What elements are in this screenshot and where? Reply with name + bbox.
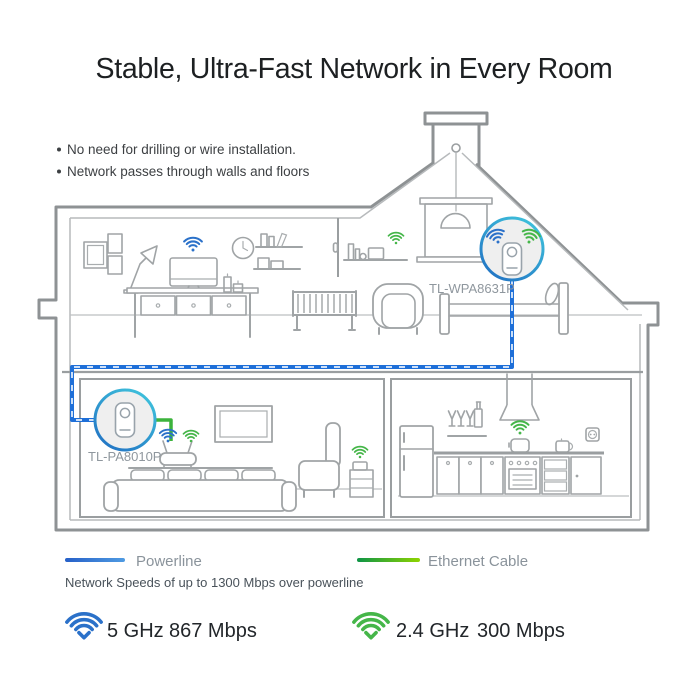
armchair-upstairs (373, 284, 423, 334)
range-hood (500, 374, 539, 420)
wifi-icon-green-kitchen-device (511, 421, 528, 434)
adapter-label-upstairs: TL-WPA8631P (429, 281, 515, 296)
wifi-icon-green-cabinet-device (352, 447, 367, 459)
roof-peak-hook (452, 144, 460, 152)
floating-shelf (344, 244, 407, 260)
powerline-adapter-device (116, 403, 135, 437)
radiator (293, 291, 356, 330)
powerline-infographic: Stable, Ultra-Fast Network in Every Room… (0, 0, 700, 700)
power-outlet (586, 428, 599, 441)
side-cabinet (350, 462, 373, 497)
ethernet-legend-label: Ethernet Cable (428, 553, 528, 570)
bottle (475, 409, 483, 427)
wifi-icon-green-shelf-device (388, 233, 403, 245)
wifi-speed-24ghz: 2.4 GHz 300 Mbps (354, 614, 565, 642)
band-24ghz: 2.4 GHz (396, 620, 469, 642)
smart-device (353, 462, 367, 470)
desk-lamp (124, 246, 157, 293)
bullet-point-1: No need for drilling or wire installatio… (67, 142, 296, 157)
powerline-adapter-device (503, 243, 522, 275)
sofa (104, 468, 296, 511)
armchair-downstairs (299, 423, 340, 497)
wifi-router (160, 441, 196, 468)
rate-5ghz: 867 Mbps (169, 620, 257, 642)
wifi-arrow-icon-blue (67, 614, 101, 638)
picture-frames (84, 234, 122, 274)
adapter-label-downstairs: TL-PA8010P (88, 449, 161, 464)
bullet-dot (57, 148, 61, 152)
bullet-dot (57, 170, 61, 174)
wifi-icon-green-router (183, 431, 198, 443)
legend: Powerline Network Speeds of up to 1300 M… (65, 553, 528, 590)
fridge (400, 426, 433, 497)
oven (505, 457, 540, 494)
kitchen-counter (434, 453, 604, 494)
toaster (511, 439, 529, 452)
adapter-downstairs: TL-PA8010P (88, 390, 161, 464)
bullet-point-2: Network passes through walls and floors (67, 164, 310, 179)
rate-24ghz: 300 Mbps (477, 620, 565, 642)
wine-shelf (448, 402, 486, 436)
powerline-speed-note: Network Speeds of up to 1300 Mbps over p… (65, 575, 363, 590)
desk (127, 288, 258, 337)
wifi-speed-5ghz: 5 GHz 867 Mbps (67, 614, 257, 642)
powerline-legend-label: Powerline (136, 553, 202, 570)
tv (215, 406, 272, 442)
wifi-icon-blue-computer (184, 238, 202, 252)
wall-clock (233, 238, 254, 259)
cupboard (571, 457, 601, 494)
band-5ghz: 5 GHz (107, 620, 164, 642)
wall-shelves (254, 234, 302, 270)
drawer-stack (542, 457, 569, 494)
page-title: Stable, Ultra-Fast Network in Every Room (96, 53, 613, 85)
wifi-icon-blue-router (160, 430, 176, 443)
wifi-arrow-icon-green (354, 614, 388, 638)
kettle (556, 439, 573, 452)
partition-door (334, 218, 339, 277)
kitchen (400, 374, 604, 497)
powerline-legend-line (65, 558, 125, 562)
ethernet-legend-line (357, 558, 420, 562)
